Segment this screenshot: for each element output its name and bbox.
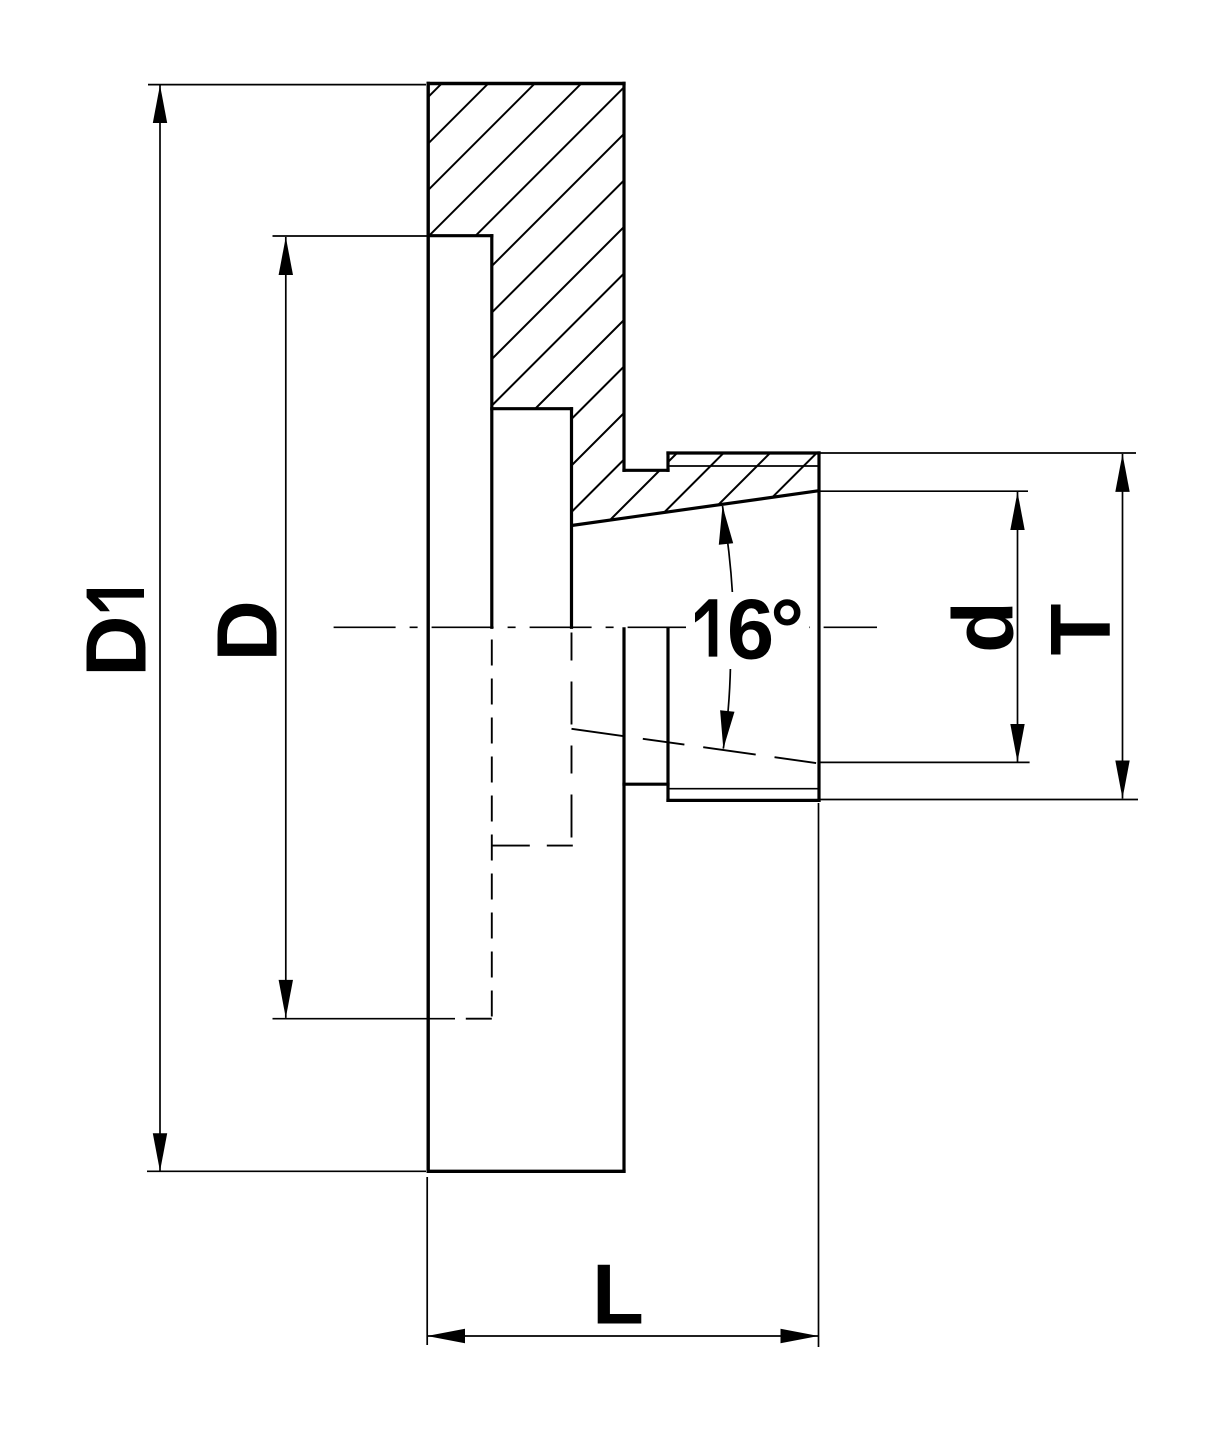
svg-text:D: D xyxy=(69,615,164,676)
svg-text:d: d xyxy=(937,601,1032,653)
svg-text:L: L xyxy=(592,1248,644,1343)
svg-text:T: T xyxy=(1034,603,1129,655)
svg-text:6°: 6° xyxy=(727,583,801,678)
svg-text:D: D xyxy=(201,600,296,661)
